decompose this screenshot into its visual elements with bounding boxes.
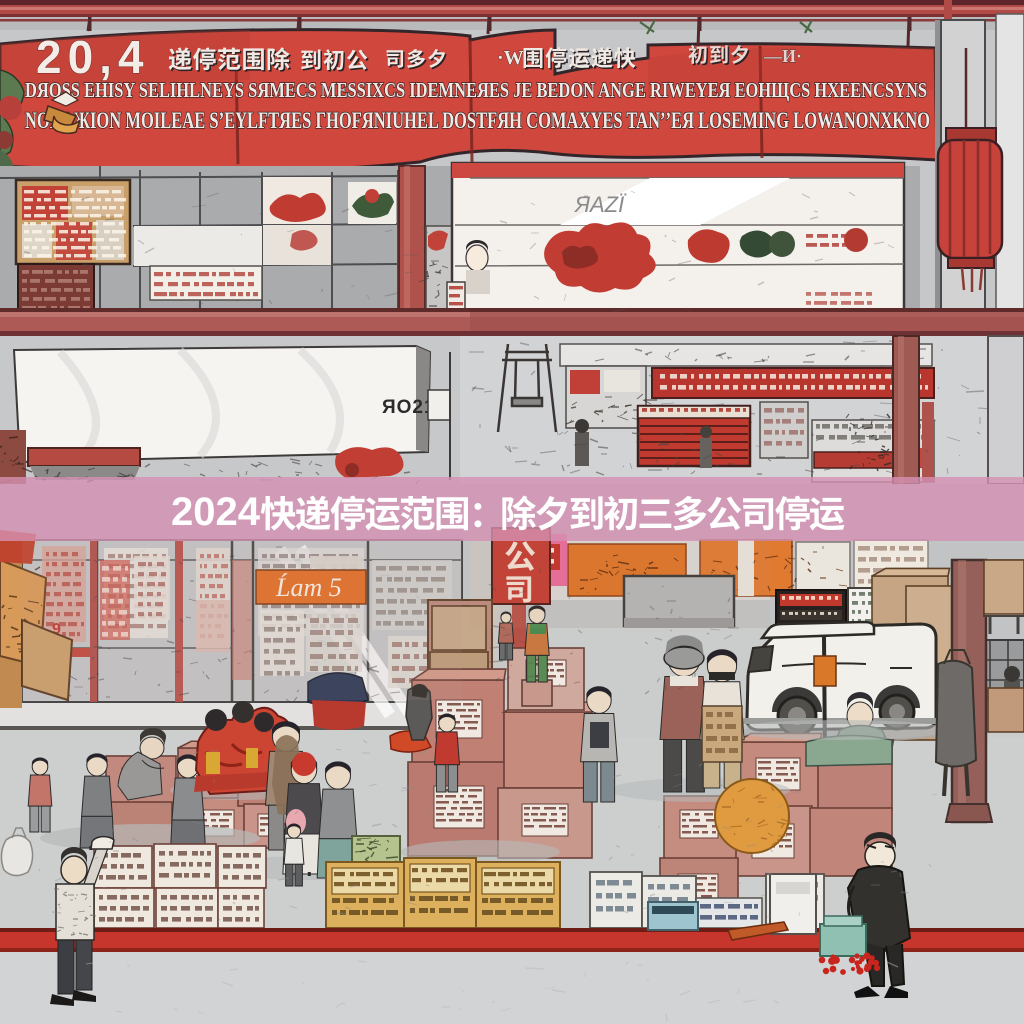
svg-text:ЯAZЇ: ЯAZЇ <box>574 192 627 217</box>
svg-text:2024: 2024 <box>171 490 261 534</box>
svg-text:20,4: 20,4 <box>36 31 150 83</box>
svg-text:DЯOSS EHISY SELIHLNEYS SЯMЕCS: DЯOSS EHISY SELIHLNEYS SЯMЕCS MESSIXCS I… <box>25 78 927 102</box>
svg-text:—И·: —И· <box>763 46 802 66</box>
svg-text:NODАЖION MOILЕAE SʼEYLFTЯES ГH: NODАЖION MOILЕAE SʼEYLFTЯES ГHOFЯNIUHЕL … <box>25 108 930 133</box>
